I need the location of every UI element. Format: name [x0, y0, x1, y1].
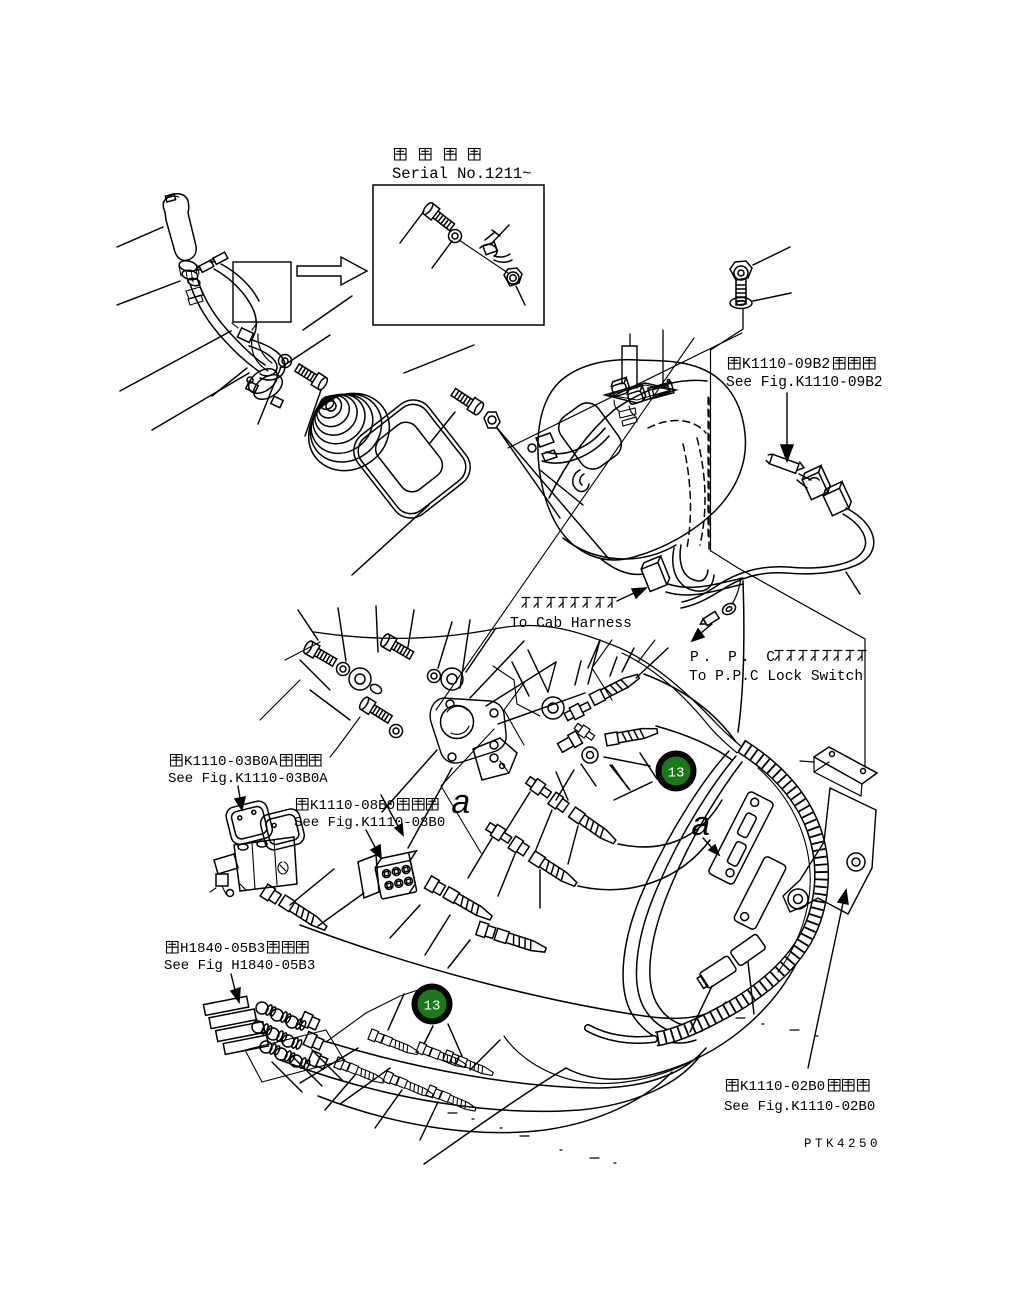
svg-text:K1110-03B0A: K1110-03B0A: [184, 754, 278, 770]
svg-text:a: a: [691, 808, 711, 846]
svg-text:To P.P.C Lock Switch: To P.P.C Lock Switch: [689, 669, 863, 685]
svg-text:P. P. C: P. P. C: [690, 650, 779, 666]
svg-text:See Fig.K1110-02B0: See Fig.K1110-02B0: [724, 1099, 875, 1115]
svg-text:K1110-02B0: K1110-02B0: [740, 1079, 825, 1095]
svg-text:H1840-05B3: H1840-05B3: [180, 941, 265, 957]
svg-text:13: 13: [668, 766, 685, 782]
svg-text:Serial No.1211~: Serial No.1211~: [392, 165, 532, 183]
svg-text:PTK4250: PTK4250: [804, 1137, 881, 1151]
svg-text:See Fig H1840-05B3: See Fig H1840-05B3: [164, 958, 315, 974]
svg-text:See Fig.K1110-09B2: See Fig.K1110-09B2: [726, 375, 883, 391]
svg-text:To Cab Harness: To Cab Harness: [510, 616, 632, 632]
svg-text:a: a: [451, 786, 471, 824]
svg-text:K1110-09B2: K1110-09B2: [742, 357, 830, 373]
svg-text:13: 13: [424, 999, 441, 1015]
svg-text:See Fig.K1110-03B0A: See Fig.K1110-03B0A: [168, 771, 328, 787]
